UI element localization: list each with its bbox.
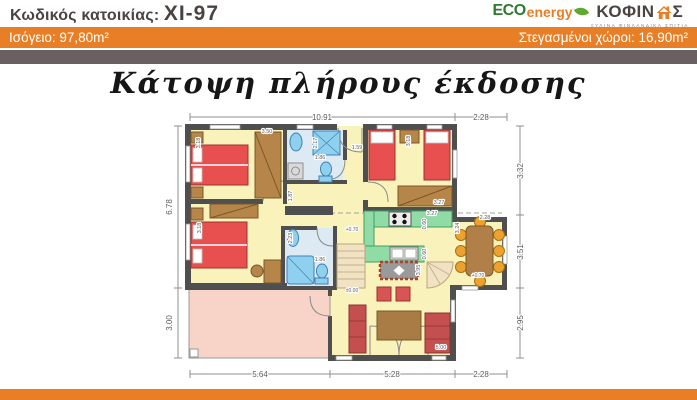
plan-dimension-label: 3.50 [262,129,273,135]
toilet [317,264,328,278]
plan-dimension-label: 2.23 [288,233,294,244]
terrace-floor [189,288,330,358]
plan-dimension-label: 0.60 [422,219,428,230]
plan-dimension-label: 3.27 [434,200,445,206]
plan-dimension-label: 2.28 [473,370,489,379]
chair [456,246,467,257]
plan-dimension-label: 10.91 [312,113,333,122]
plan-title: Κάτοψη πλήρους έκδοσης [0,66,697,100]
sofa [349,305,366,353]
terrace-column [190,349,198,357]
pillow [371,132,393,143]
plan-dimension-label: 3.27 [427,211,438,217]
plan-dimension-label: 5.64 [252,370,268,379]
plan-dimension-label: 5.00 [436,345,447,351]
plan-dimension-label: 1.59 [352,145,363,151]
footer-bar [0,389,697,400]
header: Κωδικός κατοικίας: XI-97 ECO energy ΚΟΦΙ… [0,0,697,27]
brand-name-post: Σ [673,2,684,22]
house-code-value: XI-97 [164,2,219,25]
plan-dimension-label: 3.24 [455,223,461,234]
chair [494,230,505,241]
ottoman [377,287,391,301]
stove [389,212,411,226]
plan-dimension-label: ±0.00 [346,288,359,294]
coffee-table [377,311,421,340]
plan-dimension-label: +0.70 [472,273,485,279]
plan-dimension-label: 1.87 [288,191,294,202]
chair [251,265,263,277]
ottoman [396,287,410,301]
area-ground-floor: Ισόγειο: 97,80m² [9,30,109,45]
toilet [321,162,332,176]
brand-name: ΚΟΦΙΝ Σ [596,2,683,22]
plan-dimension-label: 2.28 [473,113,489,122]
pillow [193,249,202,263]
house-icon [656,5,672,20]
house-code: Κωδικός κατοικίας: XI-97 [10,2,219,26]
plan-dimension-label: 1.86 [315,155,326,161]
chair [494,246,505,257]
divider-bar [0,50,697,64]
plan-dimension-label: 2.95 [516,315,525,331]
pillow [426,132,448,143]
plan-dimension-label: +0.70 [346,227,359,233]
plan-dimension-label: 3.95 [416,265,422,276]
leaf-icon [573,4,588,19]
plan-dimension-label: 5.28 [384,370,400,379]
company-logo: ECO energy ΚΟΦΙΝ Σ ΞΥΛΙΝΑ ΦΙΝΛΑΝΔΙΚΑ ΣΠΙ… [493,2,690,26]
energy-logo-text: energy [527,4,573,20]
area-covered-spaces: Στεγασμένοι χώροι: 16,90m² [519,30,688,45]
desk [264,260,281,283]
page: Κωδικός κατοικίας: XI-97 ECO energy ΚΟΦΙ… [0,0,697,400]
plan-dimension-label: 3.51 [516,244,525,260]
brand-name-pre: ΚΟΦΙΝ [596,2,654,22]
chair [456,262,467,273]
dining-table [466,226,493,276]
plan-dimension-label: 6.78 [165,199,174,215]
plan-dimension-label: 3.00 [165,315,174,331]
plan-dimension-label: 3.18 [197,223,203,234]
chair [494,262,505,273]
nightstand [191,187,203,198]
plan-dimension-label: 3.32 [516,163,525,179]
plan-dimension-label: 3.18 [406,136,412,147]
pillow [193,148,202,162]
plan-dimension-label: 0.60 [422,249,428,260]
plan-dimension-label: 3.18 [196,138,202,149]
plan-dimension-label: 1.86 [315,257,326,263]
area-bar: Ισόγειο: 97,80m² Στεγασμένοι χώροι: 16,9… [0,27,697,48]
plan-dimension-label: 2.28 [480,215,491,221]
washing-machine [288,163,303,179]
nightstand [191,208,203,220]
eco-logo-text: ECO [493,2,526,20]
pillow [193,168,202,182]
plan-dimension-label: 2.17 [313,138,319,149]
house-code-label: Κωδικός κατοικίας: [10,7,159,24]
sink [290,133,302,151]
brand-block: ΚΟΦΙΝ Σ ΞΥΛΙΝΑ ΦΙΝΛΑΝΔΙΚΑ ΣΠΙΤΙΑ [591,2,689,28]
